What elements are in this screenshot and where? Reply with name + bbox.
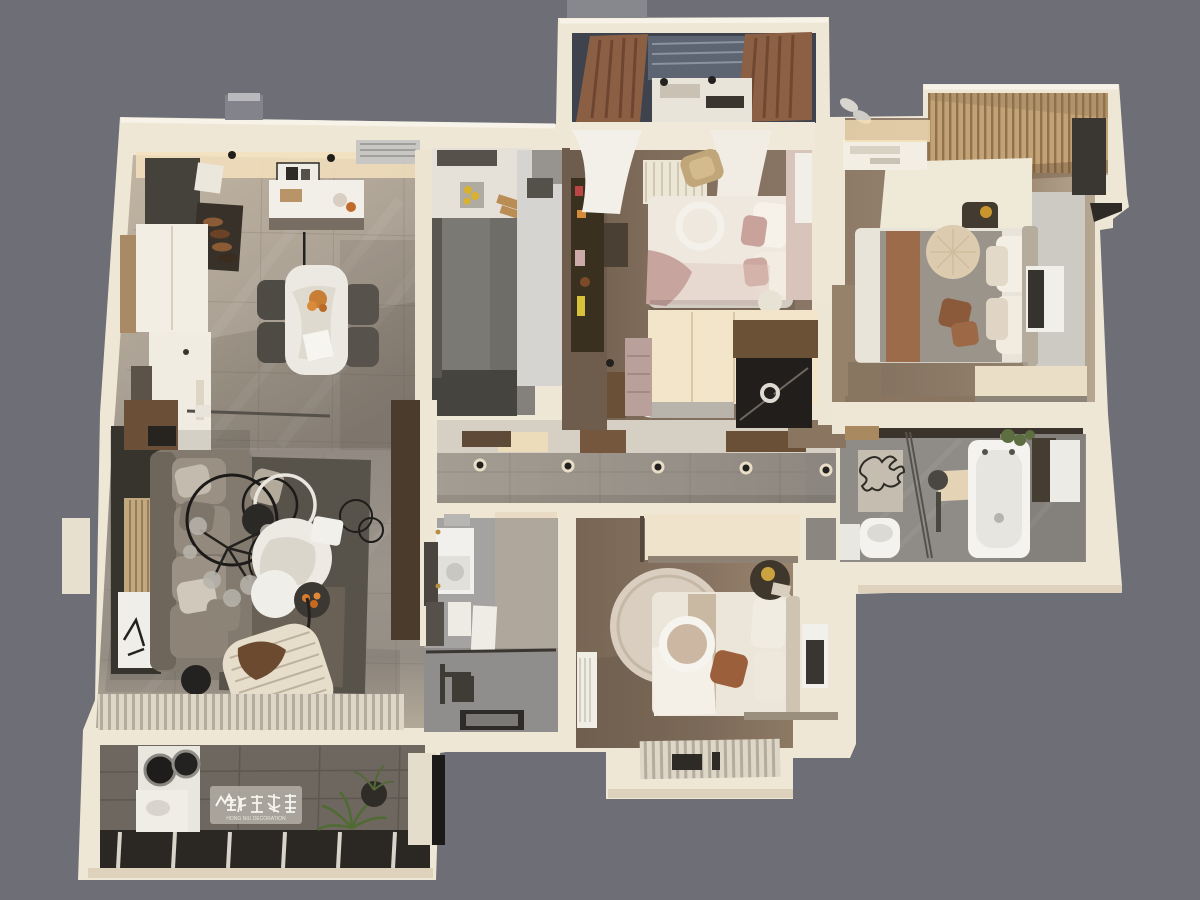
svg-text:HONG NIU DECORATION: HONG NIU DECORATION (226, 816, 286, 822)
